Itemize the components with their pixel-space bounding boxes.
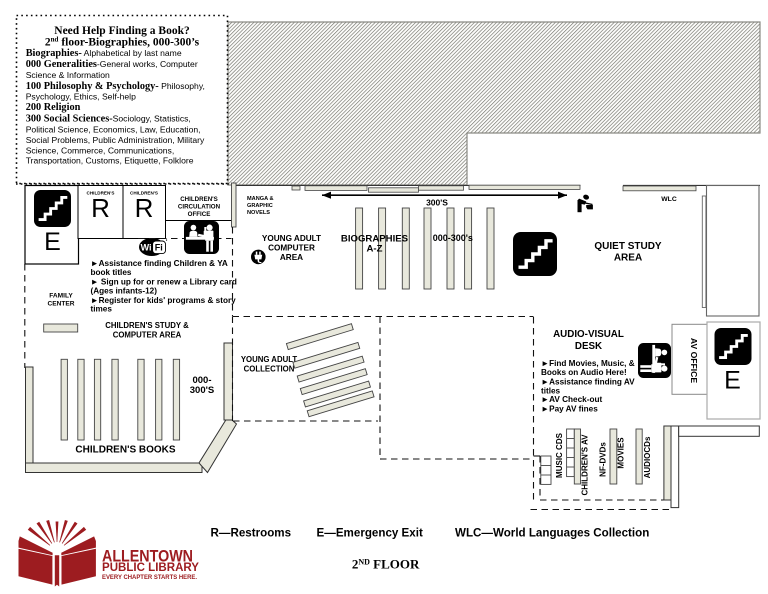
svg-text:YOUNG ADULT: YOUNG ADULT	[262, 234, 321, 243]
svg-text:AV OFFICE: AV OFFICE	[689, 338, 699, 383]
svg-text:NF-DVDs: NF-DVDs	[599, 442, 608, 477]
svg-text:E: E	[724, 366, 741, 394]
svg-text:Transportation, Customs, Etiqu: Transportation, Customs, Etiquette, Folk…	[26, 155, 194, 165]
svg-text:NOVELS: NOVELS	[247, 210, 270, 216]
svg-text:Fi: Fi	[155, 243, 163, 253]
svg-text:R: R	[135, 193, 154, 223]
svg-text:► Sign up for or renew a Libra: ► Sign up for or renew a Library card	[91, 278, 237, 287]
svg-text:R: R	[91, 193, 110, 223]
svg-text:Psychology, Ethics, Self-help: Psychology, Ethics, Self-help	[26, 91, 136, 101]
svg-text:(Ages infants-12): (Ages infants-12)	[91, 287, 158, 296]
svg-text:WLC—World Languages Collection: WLC—World Languages Collection	[455, 527, 649, 540]
svg-text:CHILDREN'S BOOKS: CHILDREN'S BOOKS	[75, 445, 175, 456]
svg-text:Wi: Wi	[141, 242, 152, 252]
svg-text:Science & Information: Science & Information	[26, 70, 110, 80]
svg-text:CENTER: CENTER	[47, 301, 74, 308]
svg-text:FAMILY: FAMILY	[49, 293, 73, 300]
svg-text:R—Restrooms: R—Restrooms	[211, 527, 292, 540]
svg-text:MUSIC CDS: MUSIC CDS	[555, 432, 564, 478]
svg-text:DESK: DESK	[575, 341, 602, 352]
svg-text:A-Z: A-Z	[367, 244, 383, 255]
svg-text:MOVIES: MOVIES	[617, 437, 626, 469]
svg-text:MANGA &: MANGA &	[247, 196, 274, 202]
svg-text:200 Religion: 200 Religion	[26, 102, 81, 113]
svg-text:►Register for kids' programs &: ►Register for kids' programs & story	[91, 296, 237, 305]
svg-text:Books on Audio Here!: Books on Audio Here!	[541, 368, 627, 377]
svg-text:GRAPHIC: GRAPHIC	[247, 203, 273, 209]
svg-text:COMPUTER: COMPUTER	[268, 244, 315, 253]
svg-text:CIRCULATION: CIRCULATION	[178, 204, 221, 211]
svg-text:EVERY CHAPTER STARTS HERE.: EVERY CHAPTER STARTS HERE.	[102, 575, 197, 581]
svg-text:300 Social Sciences-Sociology,: 300 Social Sciences-Sociology, Statistic…	[26, 114, 191, 125]
svg-text:COMPUTER AREA: COMPUTER AREA	[113, 331, 182, 340]
svg-text:►Assistance finding Children &: ►Assistance finding Children & YA	[91, 259, 228, 268]
svg-text:book titles: book titles	[91, 268, 132, 277]
svg-text:WLC: WLC	[661, 196, 677, 203]
svg-text:AUDIO-VISUAL: AUDIO-VISUAL	[553, 329, 624, 340]
svg-text:QUIET STUDY: QUIET STUDY	[594, 241, 662, 252]
svg-text:E: E	[44, 228, 61, 256]
svg-text:YOUNG ADULT: YOUNG ADULT	[241, 355, 298, 364]
svg-text:300'S: 300'S	[426, 198, 448, 208]
svg-text:times: times	[91, 305, 113, 314]
svg-text:CHILDREN'S: CHILDREN'S	[180, 196, 218, 203]
svg-text:PUBLIC LIBRARY: PUBLIC LIBRARY	[102, 562, 199, 574]
svg-text:Need Help Finding a Book?: Need Help Finding a Book?	[54, 25, 190, 37]
svg-text:COLLECTION: COLLECTION	[244, 365, 295, 374]
svg-text:►Find Movies, Music, &: ►Find Movies, Music, &	[541, 359, 635, 368]
svg-text:AUDIOCDs: AUDIOCDs	[643, 436, 652, 478]
svg-text:CHILDREN'S STUDY &: CHILDREN'S STUDY &	[105, 321, 189, 330]
svg-text:Social Problems, Public Admini: Social Problems, Public Administration, …	[26, 135, 205, 145]
svg-text:AREA: AREA	[614, 253, 642, 264]
svg-text:►Pay AV fines: ►Pay AV fines	[541, 404, 598, 413]
svg-text:AREA: AREA	[280, 253, 303, 262]
svg-text:000 Generalities-General works: 000 Generalities-General works, Computer	[26, 59, 198, 70]
svg-text:Science, Commerce, Communicati: Science, Commerce, Communications,	[26, 145, 175, 155]
svg-text:►AV Check-out: ►AV Check-out	[541, 395, 602, 404]
svg-text:Political Science, Economics,: Political Science, Economics, Law, Educa…	[26, 125, 201, 135]
svg-text:OFFICE: OFFICE	[188, 211, 211, 218]
svg-text:►Assistance finding AV: ►Assistance finding AV	[541, 378, 635, 387]
svg-text:CHILDREN'S AV: CHILDREN'S AV	[581, 434, 590, 496]
svg-text:000-300's: 000-300's	[433, 233, 473, 243]
svg-text:2nd floor-Biographies, 000-300: 2nd floor-Biographies, 000-300’s	[45, 35, 200, 48]
svg-text:E—Emergency Exit: E—Emergency Exit	[317, 527, 423, 540]
svg-text:Biographies- Alphabetical by l: Biographies- Alphabetical by last name	[26, 48, 182, 59]
svg-text:300'S: 300'S	[190, 385, 214, 396]
